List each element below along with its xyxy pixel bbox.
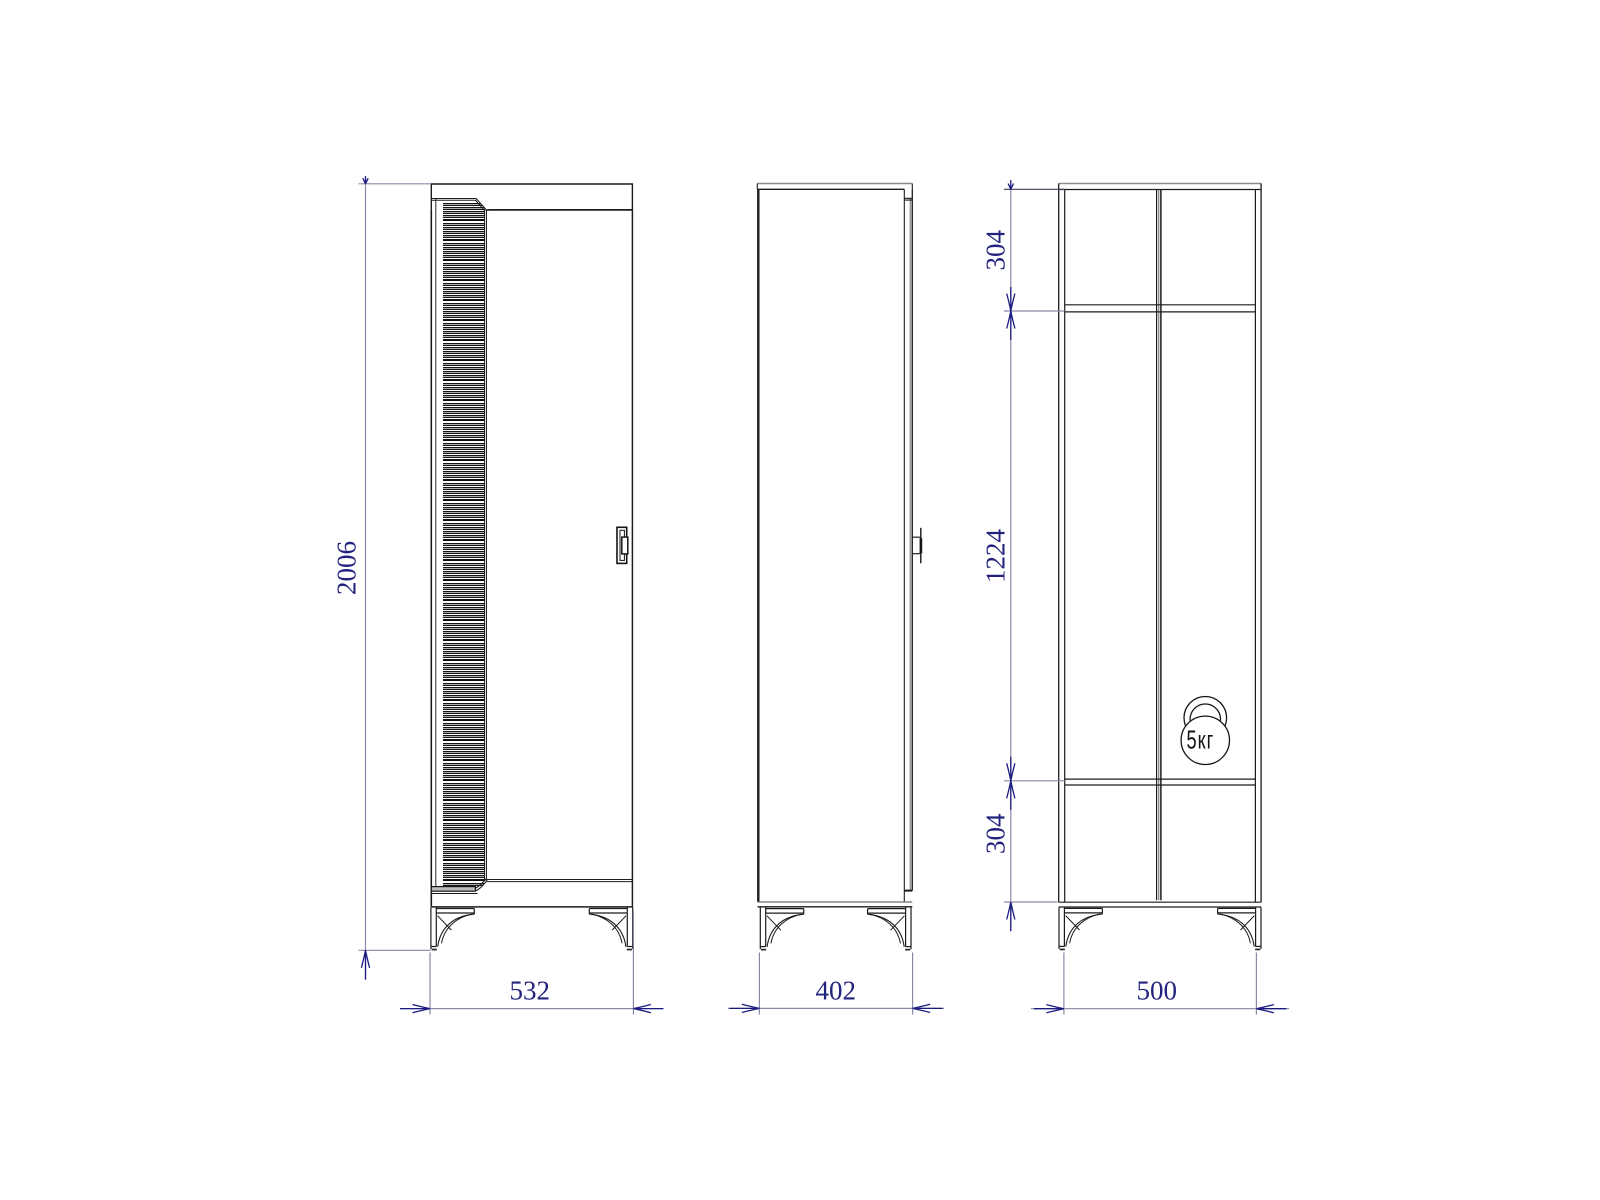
svg-text:532: 532: [510, 976, 551, 1006]
svg-text:2006: 2006: [332, 541, 362, 595]
svg-text:500: 500: [1137, 976, 1178, 1006]
svg-text:402: 402: [816, 976, 857, 1006]
svg-text:304: 304: [981, 813, 1011, 854]
svg-text:304: 304: [981, 230, 1011, 271]
svg-text:5кг: 5кг: [1187, 725, 1215, 754]
svg-text:1224: 1224: [981, 529, 1011, 584]
